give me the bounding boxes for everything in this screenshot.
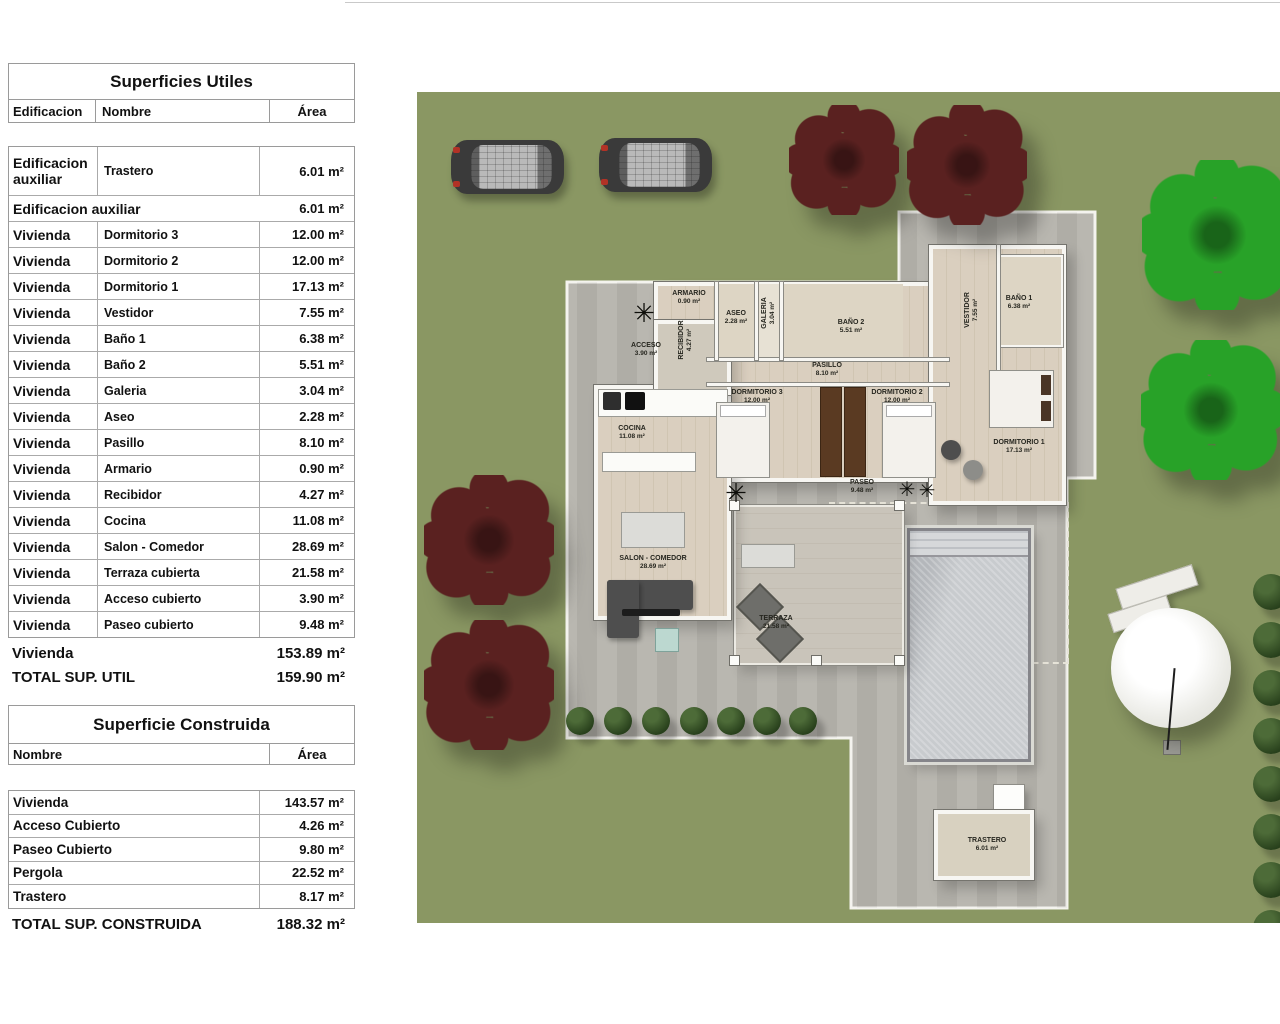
- wardrobe-door: [821, 388, 841, 476]
- cell-edificacion: Vivienda: [9, 534, 98, 559]
- cell-area: 9.80 m²: [260, 838, 354, 861]
- car: [451, 140, 564, 194]
- table-row: ViviendaTerraza cubierta21.58 m²: [9, 559, 354, 585]
- table-row: ViviendaPaseo cubierto9.48 m²: [9, 611, 354, 637]
- table-row: ViviendaSalon - Comedor28.69 m²: [9, 533, 354, 559]
- cell-edificacion: Vivienda: [9, 300, 98, 325]
- tree-maroon: [424, 475, 554, 605]
- cell-nombre: Paseo Cubierto: [9, 838, 260, 861]
- coffee-table: [655, 628, 679, 652]
- top-border-line: [345, 2, 1280, 3]
- room-label-salon-comedor: SALON - COMEDOR28.69 m²: [619, 554, 686, 572]
- room-label-cocina: COCINA11.08 m²: [618, 424, 646, 442]
- cell-area: 0.90 m²: [260, 456, 354, 481]
- table-row: ViviendaBaño 25.51 m²: [9, 351, 354, 377]
- cell-edificacion: Vivienda: [9, 612, 98, 637]
- cell-nombre: Dormitorio 2: [98, 248, 260, 273]
- cell-nombre: Acceso cubierto: [98, 586, 260, 611]
- cell-area: 3.04 m²: [260, 378, 354, 403]
- room-label-pasillo: PASILLO8.10 m²: [812, 361, 842, 379]
- cell-nombre: Dormitorio 1: [98, 274, 260, 299]
- cell-area: 22.52 m²: [260, 862, 354, 885]
- table-row: ViviendaPasillo8.10 m²: [9, 429, 354, 455]
- stove: [625, 392, 645, 410]
- armchair: [941, 440, 961, 460]
- wall-recibidor-aseo: [715, 282, 718, 360]
- table-row: ViviendaGaleria3.04 m²: [9, 377, 354, 403]
- cell-edificacion: Vivienda: [9, 378, 98, 403]
- pillow: [886, 405, 932, 417]
- dining-table: [621, 512, 685, 548]
- subtotal-area: 6.01 m²: [260, 196, 354, 221]
- table-row: ViviendaVestidor7.55 m²: [9, 299, 354, 325]
- superficies-utiles-table: Superficies Utiles Edificacion Nombre Ár…: [8, 63, 355, 686]
- cell-area: 28.69 m²: [260, 534, 354, 559]
- cell-area: 12.00 m²: [260, 248, 354, 273]
- col-header-edificacion: Edificacion: [9, 100, 96, 122]
- cell-area: 143.57 m²: [260, 791, 354, 814]
- cell-edificacion: Vivienda: [9, 404, 98, 429]
- room-label-recibidor: RECIBIDOR4.27 m²: [677, 320, 695, 359]
- site-plan: ✳ ✳ ✳ ✳ ACCESO3.90 m² RECIBIDOR4.27 m² A…: [417, 92, 1280, 923]
- cell-area: 12.00 m²: [260, 222, 354, 247]
- cell-nombre: Paseo cubierto: [98, 612, 260, 637]
- wall-galeria-bano2: [780, 282, 783, 360]
- room-label-terraza: TERRAZA21.58 m²: [759, 614, 792, 632]
- cell-nombre: Vivienda: [9, 791, 260, 814]
- superficie-construida-table: Superficie Construida Nombre Área Vivien…: [8, 705, 355, 933]
- column-header-row: Nombre Área: [9, 744, 354, 764]
- bed-dormitorio3: [716, 402, 770, 478]
- cell-area: 2.28 m²: [260, 404, 354, 429]
- cell-edificacion: Vivienda: [9, 274, 98, 299]
- potted-plant-icon: ✳: [633, 300, 655, 326]
- pillow: [720, 405, 766, 417]
- col-header-nombre: Nombre: [96, 100, 270, 122]
- bush: [753, 707, 781, 735]
- cell-nombre: Aseo: [98, 404, 260, 429]
- car-roof: [619, 143, 700, 187]
- room-label-armario: ARMARIO0.90 m²: [672, 289, 705, 307]
- table-row: Edificacion auxiliarTrastero6.01 m²: [9, 147, 354, 195]
- table-title: Superficie Construida: [9, 706, 354, 744]
- cell-area: 5.51 m²: [260, 352, 354, 377]
- kitchen-sink: [603, 392, 621, 410]
- terrace-post: [895, 656, 904, 665]
- table-body: Edificacion auxiliarTrastero6.01 m²Edifi…: [8, 146, 355, 638]
- room-label-paseo: PASEO9.48 m²: [850, 478, 874, 496]
- total-util-row: TOTAL SUP. UTIL 159.90 m²: [8, 669, 355, 686]
- cell-area: 17.13 m²: [260, 274, 354, 299]
- cell-edificacion: Vivienda: [9, 560, 98, 585]
- tree-maroon: [907, 105, 1027, 225]
- table-body: Vivienda143.57 m²Acceso Cubierto4.26 m²P…: [8, 790, 355, 909]
- cell-edificacion: Vivienda: [9, 456, 98, 481]
- paseo-plant-icon: ✳: [899, 480, 916, 500]
- cell-nombre: Armario: [98, 456, 260, 481]
- table-row: Vivienda143.57 m²: [9, 791, 354, 814]
- table-row: ViviendaAseo2.28 m²: [9, 403, 354, 429]
- cell-area: 11.08 m²: [260, 508, 354, 533]
- cell-edificacion: Vivienda: [9, 248, 98, 273]
- total-label: TOTAL SUP. UTIL: [12, 669, 135, 686]
- tree-maroon: [789, 105, 899, 215]
- cell-area: 6.38 m²: [260, 326, 354, 351]
- bush: [566, 707, 594, 735]
- cell-edificacion: Vivienda: [9, 482, 98, 507]
- tv-console: [622, 609, 680, 616]
- wall-aseo-galeria: [755, 282, 758, 360]
- cell-nombre: Cocina: [98, 508, 260, 533]
- outdoor-table: [741, 544, 795, 568]
- cell-edificacion: Vivienda: [9, 508, 98, 533]
- cell-nombre: Trastero: [9, 885, 260, 908]
- room-label-dormitorio1: DORMITORIO 117.13 m²: [993, 438, 1044, 456]
- cell-edificacion: Vivienda: [9, 326, 98, 351]
- storage-pad: [994, 785, 1024, 810]
- bush: [789, 707, 817, 735]
- cell-area: 4.26 m²: [260, 815, 354, 838]
- taillight: [453, 147, 460, 153]
- cell-area: 8.10 m²: [260, 430, 354, 455]
- subtotal-label: Edificacion auxiliar: [9, 196, 260, 221]
- potted-plant-icon: ✳: [725, 480, 747, 506]
- car-roof: [471, 145, 552, 189]
- car: [599, 138, 712, 192]
- subtotal-label: Vivienda: [12, 645, 73, 662]
- cell-nombre: Trastero: [98, 147, 260, 195]
- table-row: Pergola22.52 m²: [9, 861, 354, 885]
- pool-water: [910, 557, 1028, 759]
- cell-nombre: Pasillo: [98, 430, 260, 455]
- table-row: Trastero8.17 m²: [9, 884, 354, 908]
- paseo-plant-icon: ✳: [919, 481, 936, 501]
- table-row: ViviendaDormitorio 312.00 m²: [9, 221, 354, 247]
- armchair: [963, 460, 983, 480]
- cell-nombre: Baño 1: [98, 326, 260, 351]
- tree-green: [1141, 340, 1280, 480]
- cell-nombre: Pergola: [9, 862, 260, 885]
- room-label-bano2: BAÑO 25.51 m²: [838, 318, 864, 336]
- table-row: ViviendaArmario0.90 m²: [9, 455, 354, 481]
- bush: [717, 707, 745, 735]
- table-row: Acceso Cubierto4.26 m²: [9, 814, 354, 838]
- bed-dormitorio2: [882, 402, 936, 478]
- table-row: ViviendaDormitorio 117.13 m²: [9, 273, 354, 299]
- total-area: 159.90 m²: [251, 669, 355, 686]
- terrace-post: [812, 656, 821, 665]
- cell-area: 9.48 m²: [260, 612, 354, 637]
- taillight: [601, 145, 608, 151]
- cell-area: 7.55 m²: [260, 300, 354, 325]
- wall-vestidor: [997, 245, 1000, 385]
- cell-area: 3.90 m²: [260, 586, 354, 611]
- pillow: [1041, 401, 1051, 421]
- bed-dormitorio1: [989, 370, 1054, 428]
- terrace-post: [730, 656, 739, 665]
- wall-pasillo-bottom: [707, 383, 949, 386]
- terrace-post: [895, 501, 904, 510]
- pillow: [1041, 375, 1051, 395]
- cell-edificacion: Edificacion auxiliar: [9, 147, 98, 195]
- room-label-vestidor: VESTIDOR7.55 m²: [963, 292, 981, 328]
- cell-nombre: Galeria: [98, 378, 260, 403]
- tree-green: [1142, 160, 1280, 310]
- table-row: Paseo Cubierto9.80 m²: [9, 837, 354, 861]
- table-header-box: Superficie Construida Nombre Área: [8, 705, 355, 765]
- cell-nombre: Acceso Cubierto: [9, 815, 260, 838]
- cell-nombre: Salon - Comedor: [98, 534, 260, 559]
- col-header-area: Área: [270, 104, 354, 119]
- cell-edificacion: Vivienda: [9, 352, 98, 377]
- room-label-galeria: GALERIA3.04 m²: [760, 297, 778, 329]
- room-label-trastero: TRASTERO6.01 m²: [968, 836, 1007, 854]
- total-label: TOTAL SUP. CONSTRUIDA: [12, 916, 202, 933]
- table-header-box: Superficies Utiles Edificacion Nombre Ár…: [8, 63, 355, 123]
- floorplan-document: Superficies Utiles Edificacion Nombre Ár…: [0, 0, 1280, 1024]
- wardrobe-door: [845, 388, 865, 476]
- bush: [642, 707, 670, 735]
- cell-area: 4.27 m²: [260, 482, 354, 507]
- room-label-bano1: BAÑO 16.38 m²: [1006, 294, 1032, 312]
- room-label-dormitorio3: DORMITORIO 312.00 m²: [731, 388, 782, 406]
- cell-nombre: Dormitorio 3: [98, 222, 260, 247]
- cell-nombre: Vestidor: [98, 300, 260, 325]
- cell-area: 8.17 m²: [260, 885, 354, 908]
- col-header-area: Área: [270, 747, 354, 762]
- vivienda-subtotal-row: Vivienda 153.89 m²: [8, 645, 355, 662]
- tree-maroon: [424, 620, 554, 750]
- bush: [680, 707, 708, 735]
- cell-nombre: Baño 2: [98, 352, 260, 377]
- kitchen-island: [602, 452, 696, 472]
- cell-area: 6.01 m²: [260, 147, 354, 195]
- room-label-dormitorio2: DORMITORIO 212.00 m²: [871, 388, 922, 406]
- room-label-acceso: ACCESO3.90 m²: [631, 341, 661, 359]
- cell-edificacion: Vivienda: [9, 586, 98, 611]
- table-title: Superficies Utiles: [9, 64, 354, 100]
- bush: [604, 707, 632, 735]
- subtotal-area: 153.89 m²: [251, 645, 355, 662]
- column-header-row: Edificacion Nombre Área: [9, 100, 354, 122]
- cell-nombre: Terraza cubierta: [98, 560, 260, 585]
- table-subtotal-row: Edificacion auxiliar6.01 m²: [9, 195, 354, 221]
- cell-edificacion: Vivienda: [9, 222, 98, 247]
- cell-edificacion: Vivienda: [9, 430, 98, 455]
- pool-steps: [910, 531, 1028, 557]
- cell-nombre: Recibidor: [98, 482, 260, 507]
- total-area: 188.32 m²: [251, 916, 355, 933]
- table-row: ViviendaAcceso cubierto3.90 m²: [9, 585, 354, 611]
- room-label-aseo: ASEO2.28 m²: [725, 309, 747, 327]
- table-row: ViviendaRecibidor4.27 m²: [9, 481, 354, 507]
- cell-area: 21.58 m²: [260, 560, 354, 585]
- swimming-pool: [907, 528, 1031, 762]
- total-construida-row: TOTAL SUP. CONSTRUIDA 188.32 m²: [8, 916, 355, 933]
- table-row: ViviendaBaño 16.38 m²: [9, 325, 354, 351]
- col-header-nombre: Nombre: [9, 744, 270, 764]
- table-row: ViviendaCocina11.08 m²: [9, 507, 354, 533]
- table-row: ViviendaDormitorio 212.00 m²: [9, 247, 354, 273]
